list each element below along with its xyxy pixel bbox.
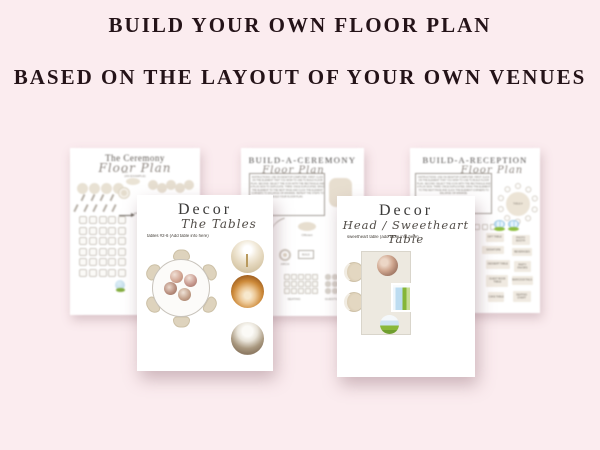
seat-icon	[532, 206, 539, 213]
centerpiece-photo-white-bouquet	[231, 322, 264, 355]
build-ceremony-title: BUILD-A-CEREMONY	[241, 155, 364, 165]
drink-station-icon	[494, 220, 505, 232]
decor-photo-florals	[377, 255, 398, 276]
label-text: SIGNATURE	[482, 249, 504, 252]
floral-stand	[101, 183, 112, 194]
arch-table-shape	[126, 178, 140, 185]
chair-icon	[79, 227, 87, 235]
decor-tables-note: tables #2-6 (Add table info here)	[147, 234, 209, 238]
flower-stem-icon	[100, 194, 104, 201]
decor-tables-subtitle: The Tables	[137, 217, 273, 231]
header-line-2: BASED ON THE LAYOUT OF YOUR OWN VENUES	[0, 65, 600, 90]
arch-element-icon	[279, 249, 291, 261]
decor-photo-dot	[170, 270, 183, 283]
label-dessert-table: DESSERT TABLE	[486, 260, 510, 269]
chair-icon	[79, 258, 87, 266]
table-number-label: TABLE #	[513, 203, 522, 205]
floral-stand-row-left	[77, 183, 124, 194]
chair-icon	[79, 248, 87, 256]
round-table: TABLE #	[506, 192, 530, 216]
decor-head-note: sweetheart table (add table info here)	[347, 235, 419, 239]
chair-icon	[99, 248, 107, 256]
ceremony-arch-label: arch	[122, 171, 128, 175]
chair-icon	[298, 281, 304, 287]
chair-icon	[89, 237, 97, 245]
seating-label: SEATING	[282, 298, 307, 302]
chair-icon	[108, 216, 116, 224]
centerpiece-photo-white-florals	[231, 240, 264, 273]
floral-stand	[89, 183, 100, 194]
chair-icon	[108, 258, 116, 266]
chair-icon	[291, 288, 297, 294]
chair-icon	[108, 248, 116, 256]
label-party-favors: PARTY FAVORS	[514, 261, 531, 272]
page-decor-the-tables: Decor The Tables tables #2-6 (Add table …	[137, 195, 273, 371]
label-gift-table: GIFT TABLE	[486, 233, 504, 242]
drink-base-icon	[494, 227, 505, 231]
chair-icon	[312, 274, 318, 280]
chair-icon	[118, 269, 126, 277]
chair-icon	[118, 237, 126, 245]
label-text: BAR/COCKTAILS	[512, 279, 533, 282]
decor-head-subtitle: Head / Sweetheart Table	[337, 218, 475, 246]
mockup-stage: BUILD YOUR OWN FLOOR PLAN BASED ON THE L…	[0, 0, 600, 450]
page-decor-head-table: Decor Head / Sweetheart Table sweetheart…	[337, 196, 475, 377]
officiant-circle	[118, 187, 130, 199]
chair-icon	[79, 237, 87, 245]
flower-stem-icon	[73, 204, 78, 212]
chair-icon	[89, 227, 97, 235]
chair-icon	[99, 258, 107, 266]
header-line-1: BUILD YOUR OWN FLOOR PLAN	[0, 13, 600, 38]
flower-stem-icon	[83, 204, 88, 212]
seat-icon	[525, 186, 533, 194]
flower-stem-icon	[109, 194, 113, 201]
chair-icon	[482, 224, 488, 230]
label-signature: SIGNATURE	[482, 246, 504, 254]
chair-icon	[305, 288, 311, 294]
aisle-flower-row-2	[75, 204, 115, 212]
tree-base-icon	[116, 288, 125, 292]
chair-icon	[305, 274, 311, 280]
label-text: GIFT TABLE	[486, 236, 504, 239]
seating-chair-grid	[284, 274, 318, 294]
chair-icon	[89, 216, 97, 224]
chair-icon	[108, 227, 116, 235]
drink-station-icon	[508, 220, 519, 232]
label-text: PHOTO BOOTH	[512, 237, 530, 243]
seat-icon	[497, 195, 504, 202]
seat-icon	[525, 215, 533, 223]
flower-stem-icon	[92, 204, 97, 212]
chair-icon	[291, 274, 297, 280]
decor-photo-dot	[164, 282, 177, 295]
chair-icon	[118, 258, 126, 266]
chair-icon	[312, 288, 318, 294]
chair-icon	[89, 248, 97, 256]
drink-base-icon	[508, 227, 519, 231]
build-reception-title: BUILD-A-RECEPTION	[410, 155, 540, 165]
label-text: GUEST BOOK TABLE	[486, 278, 508, 284]
chair-icon	[312, 281, 318, 287]
flower-stem-icon	[90, 194, 94, 201]
duplicate-button: BUILD	[298, 250, 314, 259]
ceremony-chair-grid	[79, 216, 126, 277]
label-text: DESSERT TABLE	[486, 263, 510, 266]
chair-icon	[79, 216, 87, 224]
chair-icon	[284, 281, 290, 287]
label-guest-book-table: GUEST BOOK TABLE	[486, 275, 508, 287]
decor-photo-backdrop	[391, 283, 412, 312]
floral-stand	[77, 183, 88, 194]
floral-stand-row-right	[149, 180, 194, 193]
guest-dot-icon	[325, 281, 331, 287]
label-text: PARTY FAVORS	[514, 264, 531, 270]
chair-icon	[284, 274, 290, 280]
duplicate-button-label: BUILD	[302, 253, 309, 256]
seat-icon	[503, 186, 511, 194]
label-bar-cocktails: BAR/COCKTAILS	[512, 276, 533, 285]
flower-stem-icon	[102, 204, 107, 212]
label-beverages: BEVERAGES	[512, 248, 532, 256]
floral-stand	[184, 180, 194, 190]
decor-photo-dot	[184, 274, 197, 287]
arch-element-label: ARCH	[275, 263, 295, 267]
chair-icon	[79, 269, 87, 277]
decor-photo-greenery	[380, 315, 399, 334]
label-text: CAKE TABLE	[488, 296, 504, 299]
decor-photo-dot	[178, 288, 191, 301]
chair-icon	[118, 216, 126, 224]
chair-icon	[173, 316, 190, 327]
chair-icon	[99, 237, 107, 245]
chair-icon	[99, 216, 107, 224]
seat-icon	[497, 206, 504, 213]
chair-icon	[298, 288, 304, 294]
chair-icon	[291, 281, 297, 287]
seat-icon	[515, 183, 521, 189]
chair-icon	[108, 237, 116, 245]
label-text: BEVERAGES	[512, 251, 532, 254]
label-cake-table: CAKE TABLE	[488, 292, 504, 302]
flower-stem-icon	[81, 194, 85, 201]
centerpiece-photo-amber-candles	[231, 275, 264, 308]
chair-icon	[108, 269, 116, 277]
chair-icon	[298, 274, 304, 280]
officiant-table-shape	[298, 222, 316, 231]
chair-icon	[99, 269, 107, 277]
chair-icon	[118, 248, 126, 256]
label-text: SEATING CHART	[513, 294, 531, 300]
seat-icon	[532, 195, 539, 202]
aisle-flower-row-1	[82, 194, 112, 201]
ceremony-subtitle: Floor Plan	[70, 161, 200, 175]
chair-icon	[99, 227, 107, 235]
label-photo-booth: PHOTO BOOTH	[512, 235, 530, 245]
instructions-text: INSTRUCTIONS: USE ON DESKTOP COMPUTER. F…	[416, 176, 491, 195]
label-seating-chart: SEATING CHART	[513, 291, 531, 302]
chair-icon	[118, 227, 126, 235]
chair-icon	[89, 258, 97, 266]
officiant-label: Officiant	[292, 234, 322, 238]
chair-icon	[89, 269, 97, 277]
guest-dot-icon	[325, 274, 331, 280]
guest-dot-icon	[325, 288, 331, 294]
flower-stem-icon	[111, 204, 116, 212]
chair-icon	[305, 281, 311, 287]
chair-icon	[284, 288, 290, 294]
sweetheart-table	[361, 251, 411, 335]
